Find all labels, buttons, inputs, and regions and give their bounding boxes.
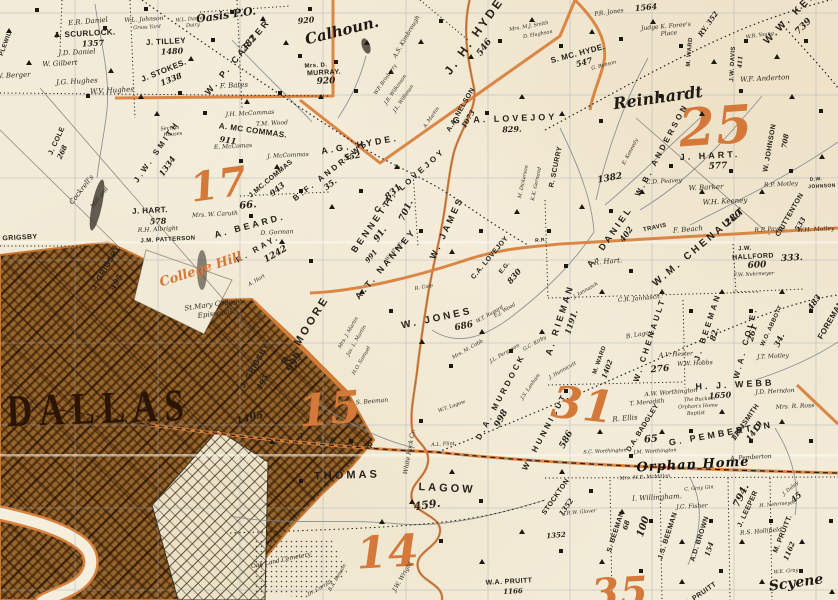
- tree-marker-icon: [759, 579, 765, 584]
- house-marker-icon: [799, 569, 803, 573]
- house-marker-icon: [809, 439, 813, 443]
- tree-marker-icon: [419, 339, 425, 344]
- tree-marker-icon: [188, 56, 194, 61]
- house-marker-icon: [239, 159, 243, 163]
- house-marker-icon: [144, 7, 148, 11]
- house-marker-icon: [547, 229, 551, 233]
- house-marker-icon: [659, 94, 663, 98]
- tree-marker-icon: [589, 29, 595, 34]
- tree-marker-icon: [394, 164, 400, 169]
- tree-marker-icon: [719, 289, 725, 294]
- map-label: 577: [708, 162, 727, 172]
- tree-marker-icon: [529, 17, 535, 22]
- tree-marker-icon: [650, 19, 656, 24]
- house-marker-icon: [479, 499, 483, 503]
- tree-marker-icon: [559, 111, 565, 116]
- tree-marker-icon: [244, 99, 250, 104]
- house-marker-icon: [719, 569, 723, 573]
- house-marker-icon: [354, 89, 358, 93]
- house-marker-icon: [509, 349, 513, 353]
- house-marker-icon: [230, 10, 234, 14]
- house-marker-icon: [629, 454, 633, 458]
- map-label: 333.: [781, 254, 803, 264]
- tree-marker-icon: [379, 519, 385, 524]
- house-marker-icon: [35, 8, 39, 12]
- tree-marker-icon: [679, 539, 685, 544]
- tree-marker-icon: [409, 499, 415, 504]
- house-marker-icon: [559, 549, 563, 553]
- tree-marker-icon: [418, 39, 424, 44]
- house-marker-icon: [649, 519, 653, 523]
- house-marker-icon: [498, 39, 502, 43]
- tree-marker-icon: [599, 559, 605, 564]
- house-marker-icon: [564, 264, 568, 268]
- tree-marker-icon: [108, 68, 114, 73]
- tree-marker-icon: [6, 28, 12, 33]
- tree-marker-icon: [318, 94, 324, 99]
- house-marker-icon: [389, 309, 393, 313]
- house-marker-icon: [639, 569, 643, 573]
- map-label: 1352: [546, 531, 566, 540]
- map-label: 68: [621, 519, 631, 530]
- map-label: 920: [297, 15, 314, 24]
- house-marker-icon: [789, 169, 793, 173]
- house-marker-icon: [334, 60, 338, 64]
- house-marker-icon: [819, 109, 823, 113]
- tree-marker-icon: [479, 329, 485, 334]
- house-marker-icon: [419, 419, 423, 423]
- tree-marker-icon: [519, 529, 525, 534]
- house-marker-icon: [769, 519, 773, 523]
- tree-marker-icon: [779, 289, 785, 294]
- house-marker-icon: [86, 94, 90, 98]
- tree-marker-icon: [479, 559, 485, 564]
- tree-marker-icon: [699, 111, 705, 116]
- map-label: THOMAS: [314, 469, 380, 482]
- tree-marker-icon: [154, 111, 160, 116]
- map-label: 578: [149, 217, 166, 226]
- tree-marker-icon: [719, 409, 725, 414]
- house-marker-icon: [829, 519, 833, 523]
- house-marker-icon: [589, 489, 593, 493]
- tree-marker-icon: [774, 54, 780, 59]
- house-marker-icon: [689, 309, 693, 313]
- map-label: J.W.: [738, 246, 752, 253]
- tree-marker-icon: [283, 40, 289, 45]
- tree-marker-icon: [449, 469, 455, 474]
- tree-marker-icon: [659, 429, 665, 434]
- tree-marker-icon: [579, 204, 585, 209]
- tree-marker-icon: [799, 539, 805, 544]
- tree-marker-icon: [659, 289, 665, 294]
- tree-marker-icon: [260, 16, 266, 21]
- map-label: 1166: [503, 587, 523, 595]
- house-marker-icon: [103, 26, 107, 30]
- tree-marker-icon: [359, 289, 365, 294]
- house-marker-icon: [439, 539, 443, 543]
- tree-marker-icon: [699, 189, 705, 194]
- house-marker-icon: [744, 39, 748, 43]
- house-marker-icon: [309, 259, 313, 263]
- tree-marker-icon: [329, 204, 335, 209]
- tree-marker-icon: [679, 579, 685, 584]
- tree-marker-icon: [711, 59, 717, 64]
- tree-marker-icon: [759, 189, 765, 194]
- tree-marker-icon: [597, 429, 603, 434]
- house-marker-icon: [599, 119, 603, 123]
- map-label: Baptist: [687, 411, 705, 417]
- house-marker-icon: [564, 389, 568, 393]
- tree-marker-icon: [514, 209, 520, 214]
- historical-map: DALLAS E.R. DanielJ. SCURLOCK.1357J.D. D…: [0, 0, 838, 600]
- house-marker-icon: [485, 111, 489, 115]
- survey-number-label: 35: [590, 572, 650, 600]
- house-marker-icon: [211, 38, 215, 42]
- house-marker-icon: [308, 7, 312, 11]
- map-label: 411: [738, 56, 745, 69]
- house-marker-icon: [749, 439, 753, 443]
- house-marker-icon: [689, 429, 693, 433]
- house-marker-icon: [619, 37, 623, 41]
- house-marker-icon: [178, 91, 182, 95]
- tree-marker-icon: [619, 509, 625, 514]
- tree-marker-icon: [559, 469, 565, 474]
- tree-marker-icon: [539, 329, 545, 334]
- house-marker-icon: [299, 189, 303, 193]
- map-label: 1357: [82, 38, 105, 47]
- map-label: 920: [316, 77, 335, 87]
- map-label: 600: [747, 261, 766, 271]
- tree-marker-icon: [468, 54, 474, 59]
- map-label: 552: [343, 151, 361, 162]
- tree-marker-icon: [779, 419, 785, 424]
- tree-marker-icon: [364, 40, 370, 45]
- tree-marker-icon: [269, 439, 275, 444]
- house-marker-icon: [729, 169, 733, 173]
- tree-marker-icon: [388, 69, 394, 74]
- map-label: 459.: [413, 498, 441, 513]
- survey-number-label: 31: [549, 381, 616, 431]
- city-label: DALLAS: [6, 380, 192, 438]
- house-marker-icon: [449, 364, 453, 368]
- tree-marker-icon: [599, 289, 605, 294]
- tree-marker-icon: [26, 60, 32, 65]
- tree-marker-icon: [819, 154, 825, 159]
- house-marker-icon: [419, 229, 423, 233]
- house-marker-icon: [739, 89, 743, 93]
- map-label: 66.: [239, 200, 257, 211]
- house-marker-icon: [559, 44, 563, 48]
- house-marker-icon: [809, 309, 813, 313]
- house-marker-icon: [749, 309, 753, 313]
- tree-marker-icon: [274, 164, 280, 169]
- house-marker-icon: [298, 54, 302, 58]
- house-marker-icon: [249, 214, 253, 218]
- tree-marker-icon: [519, 94, 525, 99]
- house-marker-icon: [439, 19, 443, 23]
- house-marker-icon: [278, 91, 282, 95]
- house-marker-icon: [679, 44, 683, 48]
- survey-number-label: 14: [355, 529, 420, 576]
- tree-marker-icon: [449, 249, 455, 254]
- tree-marker-icon: [54, 32, 60, 37]
- map-label: 708: [780, 133, 789, 149]
- map-label: 1564: [635, 2, 658, 12]
- house-marker-icon: [359, 189, 363, 193]
- tree-marker-icon: [639, 189, 645, 194]
- house-marker-icon: [709, 519, 713, 523]
- map-label: 276: [650, 365, 670, 376]
- house-marker-icon: [299, 479, 303, 483]
- house-marker-icon: [349, 439, 353, 443]
- house-marker-icon: [804, 39, 808, 43]
- map-label: 829.: [502, 125, 522, 134]
- house-marker-icon: [609, 209, 613, 213]
- house-marker-icon: [203, 111, 207, 115]
- survey-number-label: 15: [297, 385, 364, 434]
- map-label: 1480: [161, 46, 184, 55]
- house-marker-icon: [629, 269, 633, 273]
- map-label: R.R.: [535, 238, 547, 244]
- tree-marker-icon: [829, 589, 835, 594]
- tree-marker-icon: [789, 94, 795, 99]
- map-label: D.W.: [810, 177, 823, 183]
- house-marker-icon: [669, 164, 673, 168]
- tree-marker-icon: [739, 539, 745, 544]
- tree-marker-icon: [279, 239, 285, 244]
- map-label: F. Bates: [220, 82, 248, 90]
- house-marker-icon: [479, 229, 483, 233]
- map-label: 65: [644, 434, 659, 445]
- tree-marker-icon: [138, 94, 144, 99]
